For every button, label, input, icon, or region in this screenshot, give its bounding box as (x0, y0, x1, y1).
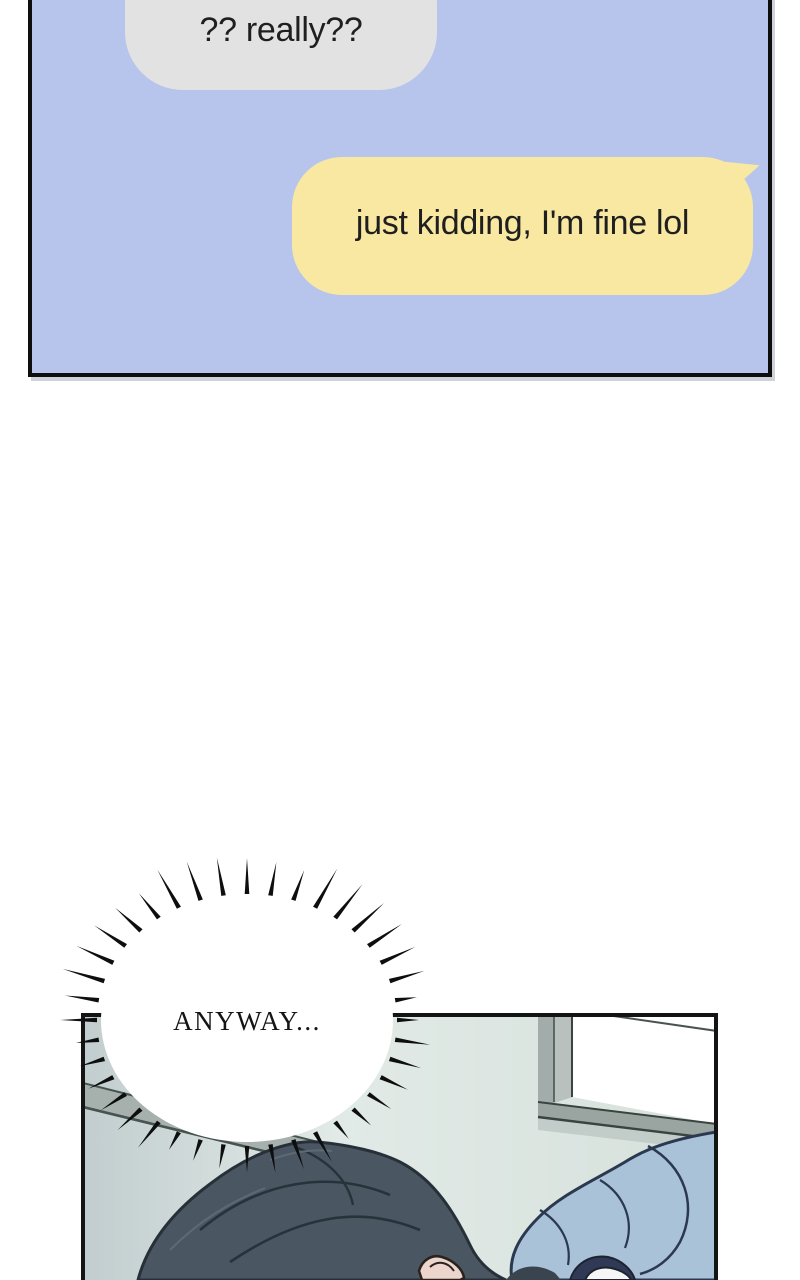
chat-panel: ?? really?? just kidding, I'm fine lol (28, 0, 772, 377)
chat-bubble-outgoing-wrap: just kidding, I'm fine lol (292, 157, 762, 295)
chat-message-outgoing-text: just kidding, I'm fine lol (356, 204, 689, 243)
chat-message-incoming-text: ?? really?? (199, 11, 362, 50)
chat-bubble-outgoing: just kidding, I'm fine lol (292, 157, 753, 295)
scene-panel: ANYWAY... (40, 850, 760, 1280)
burst-bubble-text: ANYWAY... (173, 1006, 321, 1036)
window (538, 1013, 717, 1151)
chat-bubble-incoming: ?? really?? (125, 0, 437, 90)
webtoon-page: ?? really?? just kidding, I'm fine lol (0, 0, 800, 1280)
